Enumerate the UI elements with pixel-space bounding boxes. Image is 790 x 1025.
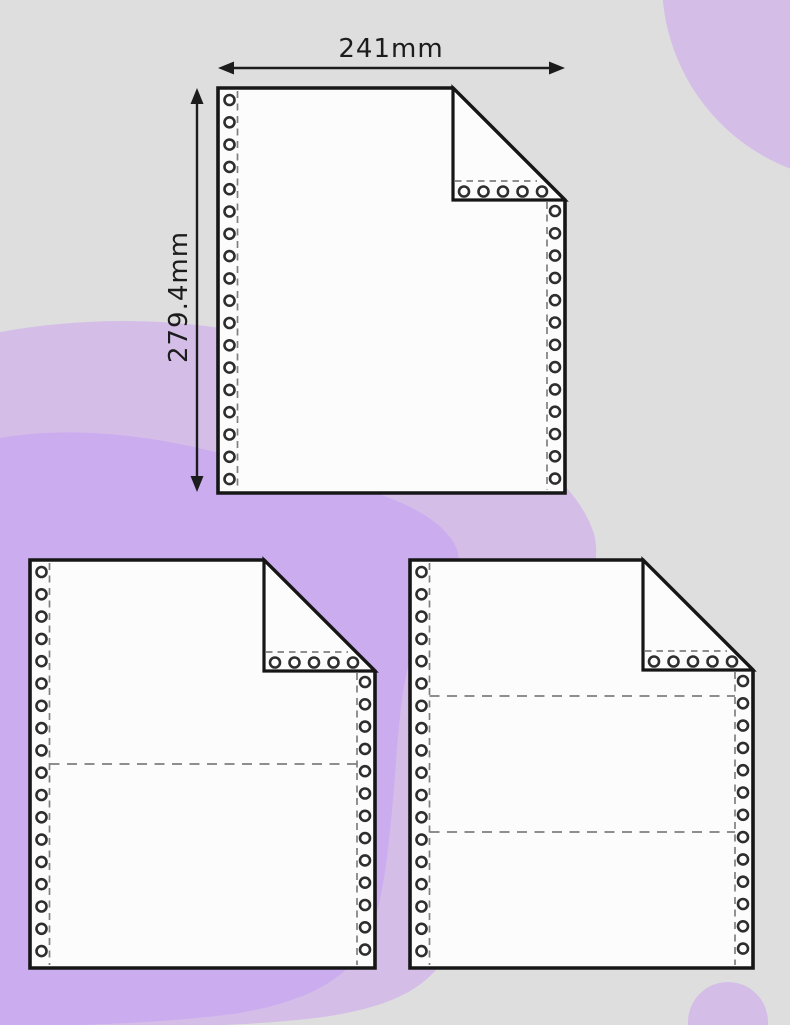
- sheet-single-ply: [218, 88, 565, 493]
- tractor-hole: [738, 944, 748, 954]
- tractor-hole: [550, 206, 560, 216]
- tractor-hole: [225, 407, 235, 417]
- tractor-hole: [225, 207, 235, 217]
- tractor-hole: [417, 589, 427, 599]
- tractor-hole: [225, 140, 235, 150]
- tractor-hole: [417, 835, 427, 845]
- tractor-hole: [550, 228, 560, 238]
- tractor-hole: [738, 899, 748, 909]
- tractor-hole: [738, 765, 748, 775]
- tractor-hole: [550, 474, 560, 484]
- tractor-hole: [550, 407, 560, 417]
- tractor-hole: [225, 296, 235, 306]
- tractor-hole: [537, 187, 547, 197]
- tractor-hole: [498, 187, 508, 197]
- tractor-hole: [550, 362, 560, 372]
- tractor-hole: [37, 567, 47, 577]
- tractor-hole: [417, 946, 427, 956]
- tractor-hole: [360, 722, 370, 732]
- tractor-hole: [738, 721, 748, 731]
- tractor-hole: [417, 924, 427, 934]
- tractor-hole: [309, 658, 319, 668]
- tractor-hole: [348, 658, 358, 668]
- tractor-hole: [37, 679, 47, 689]
- tractor-hole: [360, 766, 370, 776]
- tractor-hole: [360, 922, 370, 932]
- tractor-hole: [417, 745, 427, 755]
- tractor-hole: [37, 589, 47, 599]
- tractor-hole: [550, 273, 560, 283]
- tractor-hole: [738, 877, 748, 887]
- tractor-hole: [417, 723, 427, 733]
- tractor-hole: [550, 318, 560, 328]
- tractor-hole: [727, 657, 737, 667]
- tractor-hole: [360, 833, 370, 843]
- tractor-hole: [738, 698, 748, 708]
- tractor-hole: [360, 677, 370, 687]
- tractor-hole: [738, 921, 748, 931]
- tractor-hole: [225, 385, 235, 395]
- tractor-hole: [37, 768, 47, 778]
- tractor-hole: [225, 162, 235, 172]
- tractor-hole: [37, 902, 47, 912]
- tractor-hole: [550, 384, 560, 394]
- tractor-hole: [225, 430, 235, 440]
- tractor-hole: [225, 363, 235, 373]
- tractor-hole: [417, 812, 427, 822]
- tractor-hole: [738, 743, 748, 753]
- tractor-hole: [459, 187, 469, 197]
- tractor-hole: [738, 676, 748, 686]
- tractor-hole: [738, 810, 748, 820]
- tractor-hole: [417, 701, 427, 711]
- tractor-hole: [360, 900, 370, 910]
- tractor-hole: [225, 452, 235, 462]
- sheet-two-ply: [30, 560, 375, 968]
- tractor-hole: [688, 657, 698, 667]
- tractor-hole: [37, 656, 47, 666]
- tractor-hole: [360, 789, 370, 799]
- tractor-hole: [417, 656, 427, 666]
- tractor-hole: [417, 879, 427, 889]
- tractor-hole: [225, 318, 235, 328]
- tractor-hole: [225, 184, 235, 194]
- tractor-hole: [550, 251, 560, 261]
- tractor-hole: [37, 701, 47, 711]
- tractor-hole: [37, 634, 47, 644]
- tractor-hole: [649, 657, 659, 667]
- tractor-hole: [360, 811, 370, 821]
- tractor-hole: [417, 902, 427, 912]
- tractor-hole: [360, 744, 370, 754]
- tractor-hole: [37, 723, 47, 733]
- tractor-hole: [417, 634, 427, 644]
- tractor-hole: [417, 567, 427, 577]
- tractor-hole: [360, 699, 370, 709]
- tractor-hole: [37, 857, 47, 867]
- tractor-hole: [225, 474, 235, 484]
- tractor-hole: [550, 451, 560, 461]
- tractor-hole: [417, 612, 427, 622]
- tractor-hole: [550, 295, 560, 305]
- tractor-hole: [225, 340, 235, 350]
- tractor-hole: [225, 117, 235, 127]
- tractor-hole: [329, 658, 339, 668]
- page: { "scene": { "background_color": "#deded…: [0, 0, 790, 1025]
- tractor-hole: [417, 790, 427, 800]
- height-dimension-label: 279.4mm: [164, 231, 194, 363]
- tractor-hole: [37, 835, 47, 845]
- tractor-hole: [360, 945, 370, 955]
- tractor-hole: [738, 788, 748, 798]
- width-dimension-label: 241mm: [338, 34, 443, 64]
- tractor-hole: [417, 857, 427, 867]
- tractor-hole: [225, 95, 235, 105]
- tractor-hole: [290, 658, 300, 668]
- tractor-hole: [479, 187, 489, 197]
- tractor-hole: [550, 340, 560, 350]
- tractor-hole: [37, 879, 47, 889]
- tractor-hole: [669, 657, 679, 667]
- tractor-hole: [37, 812, 47, 822]
- tractor-hole: [708, 657, 718, 667]
- sheet-three-ply: [410, 560, 753, 968]
- tractor-hole: [37, 745, 47, 755]
- tractor-hole: [270, 658, 280, 668]
- tractor-hole: [37, 946, 47, 956]
- tractor-hole: [37, 790, 47, 800]
- tractor-hole: [225, 273, 235, 283]
- tractor-hole: [37, 924, 47, 934]
- tractor-hole: [550, 429, 560, 439]
- tractor-hole: [738, 832, 748, 842]
- tractor-hole: [360, 878, 370, 888]
- tractor-hole: [225, 229, 235, 239]
- printer-paper-diagram: 241mm 279.4mm: [0, 0, 790, 1025]
- tractor-hole: [518, 187, 528, 197]
- tractor-hole: [37, 612, 47, 622]
- tractor-hole: [417, 679, 427, 689]
- tractor-hole: [225, 251, 235, 261]
- tractor-hole: [360, 855, 370, 865]
- tractor-hole: [738, 854, 748, 864]
- tractor-hole: [417, 768, 427, 778]
